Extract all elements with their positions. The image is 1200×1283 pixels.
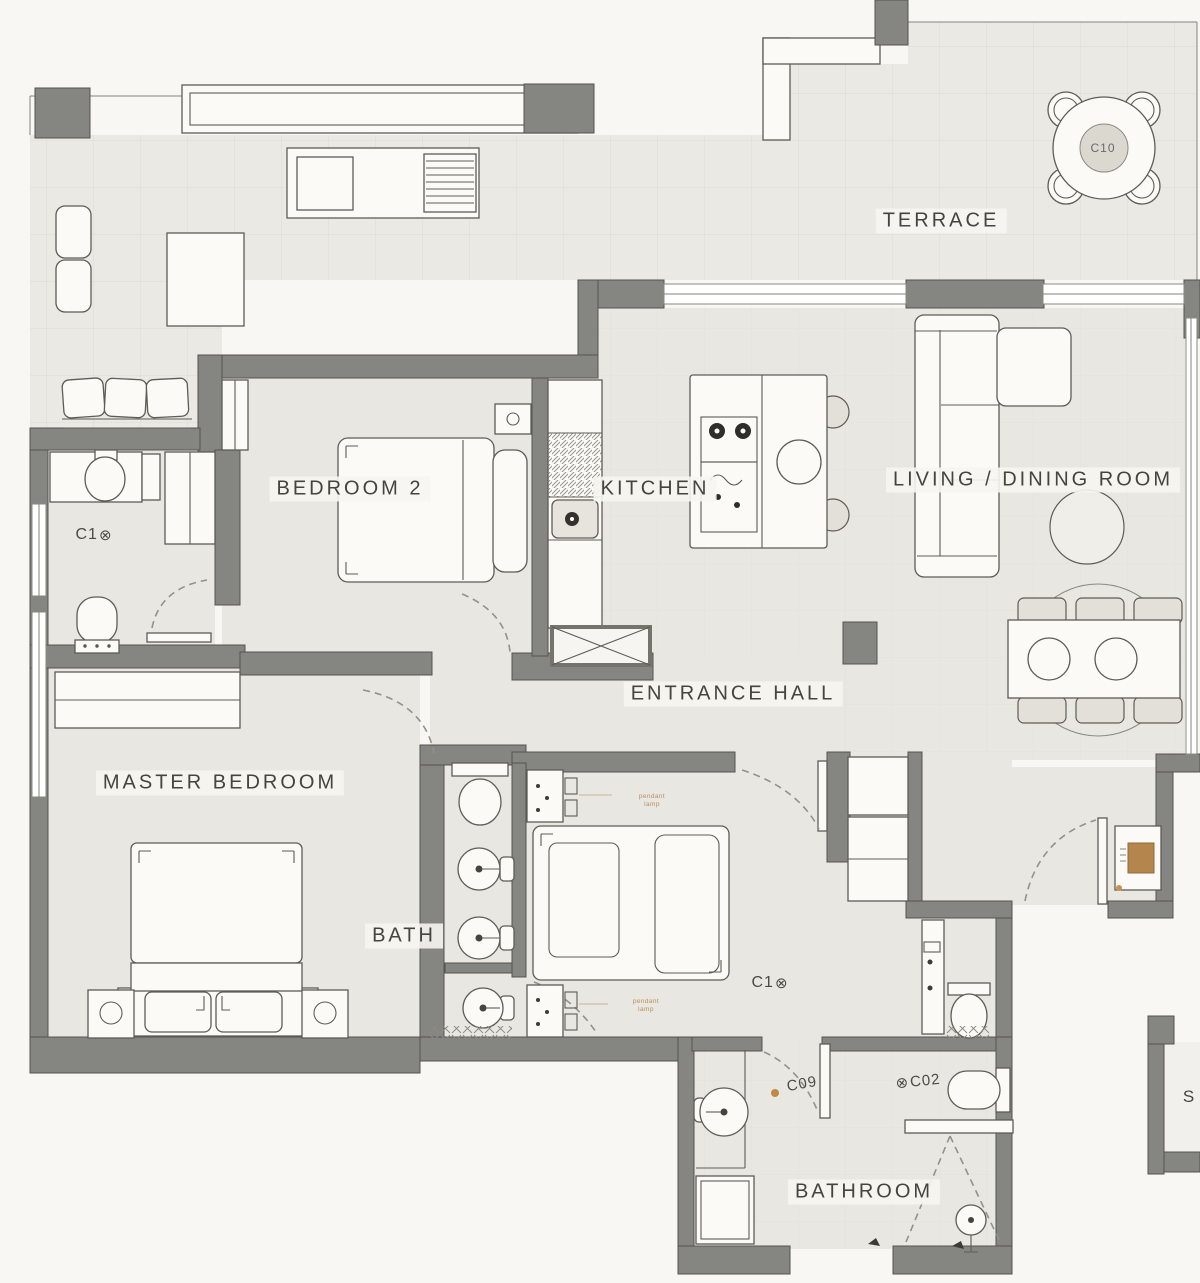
kitchen-counter	[548, 380, 602, 628]
planter-box	[182, 85, 578, 133]
code-text: C1	[751, 974, 773, 992]
wc-upper-shelf	[142, 454, 160, 500]
code-text: C02	[909, 1070, 941, 1090]
wc-upper-toilet	[75, 597, 119, 653]
code-label-middle-bedroom: C1⊗	[751, 974, 788, 992]
kitchen-island	[690, 375, 849, 548]
master-nightstand-right	[302, 990, 348, 1038]
bathroom-door-leaf	[820, 1044, 830, 1118]
annotation-pendant-lamp-lower: pendant lamp	[624, 998, 668, 1014]
entrance-door-leaf	[818, 761, 827, 831]
circle-x-icon: ⊗	[775, 974, 789, 992]
bathroom-toilet	[948, 1068, 1010, 1112]
floor-plan-canvas	[0, 0, 1200, 1283]
terrace-square-table	[167, 233, 244, 326]
code-text: C1	[75, 526, 97, 544]
wc-upper-sink	[85, 457, 125, 501]
small-wc-counter	[922, 920, 944, 1034]
duct-shaft	[552, 627, 650, 665]
bedroom2-bed	[338, 438, 527, 582]
floor-plan-page: TERRACE C10 BEDROOM 2 KITCHEN LIVING / D…	[0, 0, 1200, 1283]
dining-set	[1008, 584, 1182, 736]
room-label-partial: S	[1176, 1086, 1200, 1108]
island-round-sink	[777, 440, 821, 484]
door-marker-dot	[1116, 885, 1122, 891]
code-label-upper-wc: C1⊗	[75, 526, 112, 544]
room-label-entrance-hall: ENTRANCE HALL	[624, 682, 843, 707]
room-label-bathroom: BATHROOM	[788, 1180, 940, 1205]
bath-floor-hatch	[428, 1026, 512, 1038]
room-label-kitchen: KITCHEN	[594, 477, 717, 502]
code-label-terrace-table: C10	[1090, 141, 1115, 155]
circle-x-icon: ⊗	[99, 526, 113, 544]
wood-object	[1128, 843, 1154, 873]
hall-closet-upper	[848, 757, 908, 815]
bathroom-shelf	[905, 1120, 1013, 1133]
bedroom2-shelf	[495, 404, 531, 434]
annotation-pendant-lamp-upper: pendant lamp	[630, 793, 674, 809]
master-nightstand-left	[88, 990, 134, 1038]
door-handle-marker	[771, 1089, 779, 1097]
right-door-leaf	[1098, 818, 1107, 904]
room-label-terrace: TERRACE	[876, 209, 1007, 234]
room-label-bath: BATH	[365, 924, 443, 949]
bbq-counter	[287, 148, 479, 218]
middle-bed	[533, 826, 729, 980]
room-label-master-bedroom: MASTER BEDROOM	[96, 771, 344, 796]
bathroom-washer	[696, 1176, 754, 1244]
room-label-bedroom2: BEDROOM 2	[269, 477, 430, 502]
circle-x-icon: ⊗	[895, 1073, 910, 1092]
coffee-table	[1050, 490, 1124, 564]
small-wc-hatch	[946, 1026, 990, 1038]
room-label-living-dining: LIVING / DINING ROOM	[886, 468, 1180, 493]
wc-upper-door-leaf	[147, 633, 211, 642]
